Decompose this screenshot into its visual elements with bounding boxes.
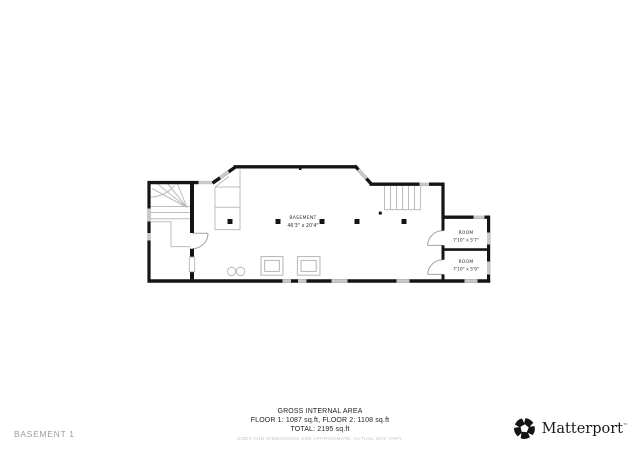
- stairs-winder-icon: [151, 183, 190, 247]
- columns: [228, 168, 407, 225]
- stool-icon: [228, 267, 236, 275]
- column-icon: [276, 219, 281, 224]
- table-inner: [301, 260, 316, 271]
- stool-icon: [236, 267, 244, 275]
- floor-plan-page: BASEMENT 46'3" x 20'4" ROOM 7'10" x 5'7"…: [0, 0, 640, 453]
- door-icon: [193, 233, 209, 249]
- room2-label: ROOM: [459, 259, 474, 265]
- column-icon: [228, 219, 233, 224]
- wall-tick: [299, 168, 302, 171]
- door-icon: [428, 260, 443, 275]
- column-icon: [355, 219, 360, 224]
- matterport-pinwheel-icon: [512, 416, 537, 441]
- brand-name: Matterport: [542, 421, 623, 437]
- stair-marker: [379, 212, 382, 215]
- room1-label: ROOM: [459, 230, 474, 236]
- column-icon: [402, 219, 407, 224]
- room1-dimensions: 7'10" x 5'7": [453, 238, 479, 244]
- room2-dimensions: 7'10" x 5'9": [453, 267, 479, 273]
- floor-name-label: BASEMENT 1: [14, 429, 75, 439]
- column-icon: [320, 219, 325, 224]
- door-icon: [428, 231, 443, 246]
- door-panel-icon: [189, 257, 194, 272]
- trademark-symbol: ™: [623, 423, 628, 429]
- matterport-wordmark: Matterport™: [542, 421, 628, 437]
- table-inner: [265, 260, 280, 271]
- basement-room-label: BASEMENT: [289, 215, 316, 221]
- furniture: [228, 257, 321, 276]
- floor-plan-drawing: BASEMENT 46'3" x 20'4" ROOM 7'10" x 5'7"…: [0, 0, 640, 453]
- matterport-logo: Matterport™: [512, 416, 628, 441]
- basement-room-dimensions: 46'3" x 20'4": [287, 223, 318, 229]
- stairs-straight-icon: [385, 186, 421, 210]
